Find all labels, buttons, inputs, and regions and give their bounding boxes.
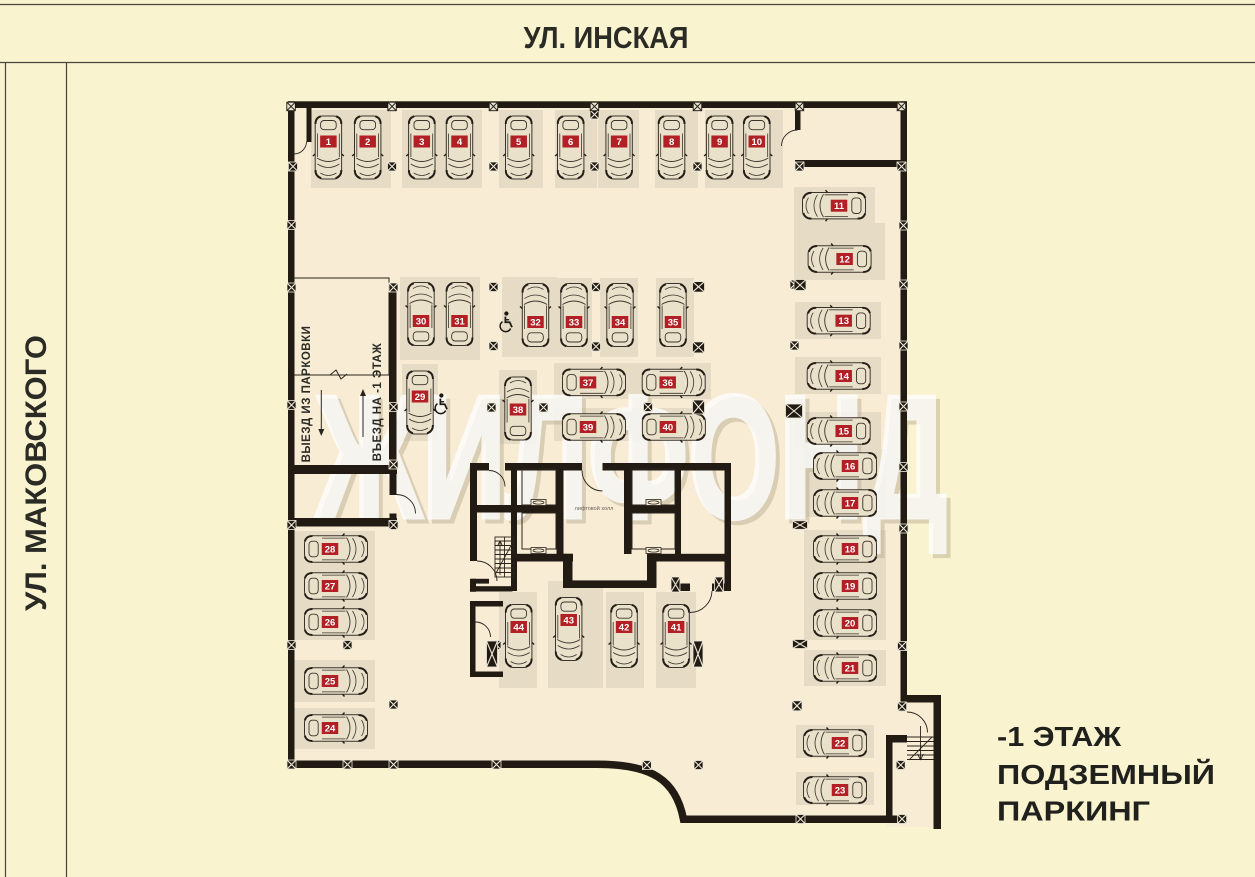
svg-text:4: 4 — [457, 137, 463, 148]
svg-text:22: 22 — [835, 738, 846, 749]
svg-text:6: 6 — [568, 137, 573, 148]
svg-text:15: 15 — [838, 426, 849, 437]
svg-text:-1 ЭТАЖ: -1 ЭТАЖ — [997, 721, 1121, 752]
svg-text:38: 38 — [513, 405, 524, 416]
svg-text:42: 42 — [619, 622, 630, 633]
svg-text:11: 11 — [834, 201, 845, 212]
svg-text:ВЫЕЗД ИЗ ПАРКОВКИ: ВЫЕЗД ИЗ ПАРКОВКИ — [301, 326, 313, 463]
svg-text:21: 21 — [845, 663, 856, 674]
svg-text:26: 26 — [325, 617, 336, 628]
svg-text:40: 40 — [663, 422, 674, 433]
svg-text:25: 25 — [325, 676, 336, 687]
svg-text:43: 43 — [563, 615, 574, 626]
svg-text:УЛ. МАКОВСКОГО: УЛ. МАКОВСКОГО — [20, 335, 53, 611]
svg-text:8: 8 — [669, 137, 674, 148]
svg-text:35: 35 — [668, 317, 679, 328]
svg-text:37: 37 — [583, 378, 594, 389]
svg-text:5: 5 — [516, 137, 522, 148]
svg-text:13: 13 — [838, 316, 849, 327]
svg-text:17: 17 — [845, 498, 856, 509]
svg-text:9: 9 — [717, 137, 722, 148]
svg-text:УЛ. ИНСКАЯ: УЛ. ИНСКАЯ — [524, 20, 689, 55]
svg-text:7: 7 — [616, 137, 621, 148]
svg-text:3: 3 — [419, 137, 424, 148]
svg-text:19: 19 — [845, 581, 856, 592]
svg-text:12: 12 — [839, 254, 850, 265]
svg-text:30: 30 — [416, 316, 427, 327]
svg-text:24: 24 — [325, 723, 336, 734]
svg-text:16: 16 — [845, 461, 856, 472]
svg-text:31: 31 — [454, 316, 465, 327]
svg-text:2: 2 — [365, 137, 370, 148]
svg-text:34: 34 — [615, 317, 626, 328]
svg-text:ВЪЕЗД НА -1 ЭТАЖ: ВЪЕЗД НА -1 ЭТАЖ — [372, 343, 384, 462]
svg-text:18: 18 — [845, 544, 856, 555]
svg-text:41: 41 — [671, 622, 682, 633]
svg-text:лифтовой холл: лифтовой холл — [575, 505, 614, 512]
svg-text:10: 10 — [752, 137, 763, 148]
svg-text:20: 20 — [845, 618, 856, 629]
svg-text:27: 27 — [325, 581, 336, 592]
svg-text:39: 39 — [583, 422, 594, 433]
svg-text:ПОДЗЕМНЫЙ: ПОДЗЕМНЫЙ — [997, 759, 1215, 790]
svg-text:32: 32 — [530, 317, 541, 328]
svg-text:29: 29 — [415, 392, 426, 403]
svg-text:28: 28 — [325, 544, 336, 555]
svg-text:44: 44 — [513, 622, 524, 633]
svg-text:33: 33 — [569, 317, 580, 328]
svg-text:23: 23 — [835, 785, 846, 796]
svg-text:36: 36 — [662, 378, 673, 389]
svg-text:1: 1 — [326, 137, 332, 148]
svg-text:14: 14 — [838, 371, 849, 382]
svg-text:ПАРКИНГ: ПАРКИНГ — [997, 796, 1150, 827]
